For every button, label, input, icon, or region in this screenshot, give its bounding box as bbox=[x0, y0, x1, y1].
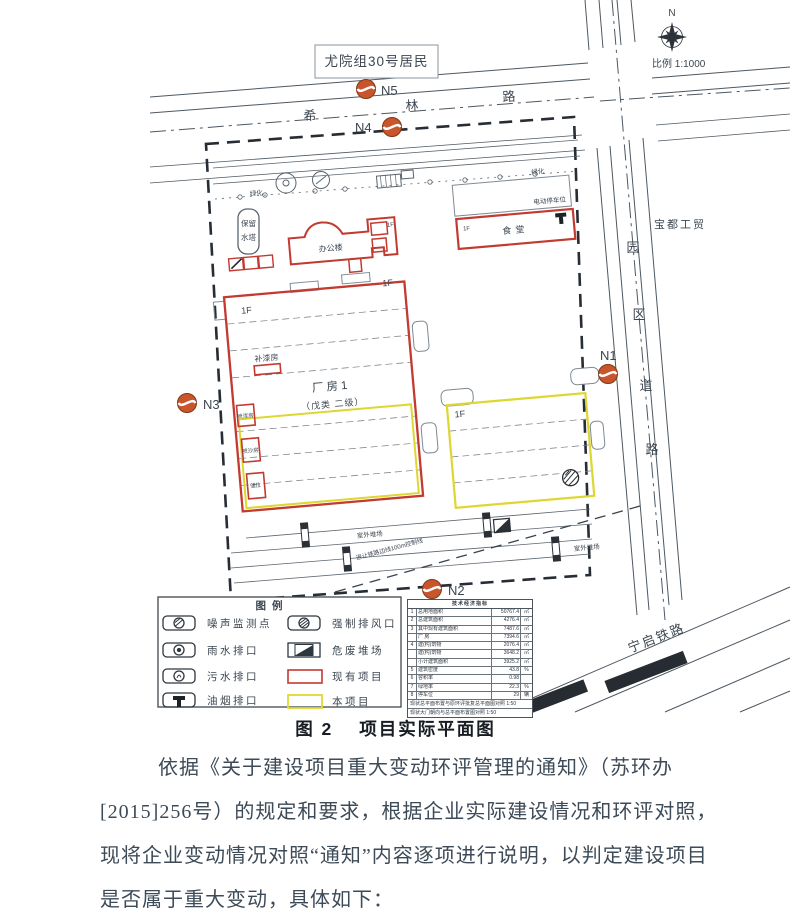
svg-text:林: 林 bbox=[405, 98, 419, 114]
noise-point-n1 bbox=[599, 365, 618, 384]
monitoring-points: N5 N4 N3 N1 N2 bbox=[178, 80, 618, 599]
compass-n-label: N bbox=[668, 8, 675, 19]
figure-number: 图 2 bbox=[295, 719, 333, 739]
indicator-table-title: 技术经济指标 bbox=[408, 600, 532, 609]
hazardous-waste-yard-icon bbox=[493, 518, 510, 532]
fence-posts bbox=[238, 172, 537, 199]
factory-name-label: 厂房1 bbox=[312, 379, 351, 395]
canteen-label: 食堂 bbox=[502, 223, 529, 236]
spray-paint-room-label: 喷漆房 bbox=[237, 411, 255, 420]
svg-text:区: 区 bbox=[632, 307, 645, 322]
railway-bar bbox=[604, 651, 687, 693]
noise-point-n3 bbox=[178, 394, 197, 413]
road-xilin bbox=[150, 63, 790, 183]
sand-blast-room-label: 喷沙房 bbox=[242, 446, 260, 455]
body-line: [2015]256号）的规定和要求，根据企业实际建设情况和环评对照， bbox=[100, 790, 700, 834]
svg-text:N5: N5 bbox=[381, 83, 398, 98]
floor-label: 1F bbox=[454, 409, 466, 420]
gate-markers bbox=[300, 513, 560, 572]
floor-label: 1F bbox=[463, 226, 471, 233]
svg-text:N3: N3 bbox=[203, 397, 220, 412]
body-line: 依据《关于建设项目重大变动环评管理的通知》（苏环办 bbox=[100, 746, 700, 790]
office-building: 办公楼 1F bbox=[288, 216, 399, 277]
resident-label-box: 尤院组30号居民 bbox=[315, 45, 438, 78]
legend: 图例 噪声监测点 雨水排口 污水排口 油烟排口 强制排风口 危 bbox=[158, 597, 401, 708]
paint-repair-room-label: 补漆房 bbox=[254, 352, 279, 364]
railway-ningqi: 宁启铁路 bbox=[500, 587, 790, 716]
oil-fume-outlet-icon bbox=[555, 213, 567, 225]
legend-exhaust-label: 强制排风口 bbox=[332, 617, 397, 630]
site-plan-figure: 宁启铁路 退让铁路边线100m控制线 绿化 保留 水塔 bbox=[0, 0, 791, 716]
railway-label: 宁启铁路 bbox=[626, 620, 687, 656]
table-row: 厂 房7394.6㎡ bbox=[408, 634, 532, 642]
legend-rain-label: 雨水排口 bbox=[207, 644, 259, 657]
document-page: 宁启铁路 退让铁路边线100m控制线 绿化 保留 水塔 bbox=[0, 0, 791, 913]
svg-text:希: 希 bbox=[303, 108, 317, 124]
road-name-xilin: 希 林 路 bbox=[303, 89, 516, 124]
substation bbox=[376, 170, 414, 188]
table-row: 小计建筑面积3925.2㎡ bbox=[408, 659, 532, 667]
table-row: 8停车位29辆 bbox=[408, 692, 532, 700]
table-row: 1总用地面积50767.4㎡ bbox=[408, 609, 532, 617]
floor-label: 1F bbox=[241, 305, 253, 316]
svg-text:水塔: 水塔 bbox=[241, 232, 256, 242]
office-label: 办公楼 bbox=[318, 242, 343, 254]
guard-booth bbox=[229, 255, 274, 271]
green-label: 绿化 bbox=[531, 166, 545, 176]
table-row: 5建筑密度43.8% bbox=[408, 667, 532, 675]
green-label: 绿化 bbox=[249, 188, 263, 198]
body-line: 现将企业变动情况对照“通知”内容逐项进行说明，以判定建设项目 bbox=[100, 834, 700, 878]
legend-hazwaste-label: 危废堆场 bbox=[332, 644, 384, 657]
floor-label: 1F bbox=[382, 277, 394, 288]
noise-point-n4 bbox=[383, 118, 402, 137]
table-row: 4建(构)筑物2076.4㎡ bbox=[408, 642, 532, 650]
body-line: 是否属于重大变动，具体如下： bbox=[100, 878, 700, 913]
legend-existing-label: 现有项目 bbox=[332, 670, 384, 683]
noise-point-n2 bbox=[423, 580, 442, 599]
ev-parking-label: 电动停车位 bbox=[533, 194, 567, 206]
svg-text:路: 路 bbox=[502, 89, 516, 105]
table-row: 2总建筑面积4276.4㎡ bbox=[408, 617, 532, 625]
outdoor-yard-label: 室外堆场 bbox=[356, 529, 383, 540]
svg-text:N2: N2 bbox=[448, 583, 465, 598]
forced-exhaust-icon bbox=[562, 469, 579, 486]
svg-text:园: 园 bbox=[626, 240, 639, 255]
legend-oil-label: 油烟排口 bbox=[207, 694, 259, 707]
svg-text:尤院组30号居民: 尤院组30号居民 bbox=[324, 54, 428, 69]
svg-text:道: 道 bbox=[639, 378, 652, 393]
utility-outlets-top bbox=[276, 172, 330, 194]
canteen-block: 电动停车位 绿化 1F 食堂 bbox=[451, 164, 575, 249]
compass-rose: N bbox=[657, 8, 687, 52]
svg-text:N4: N4 bbox=[355, 120, 372, 135]
indicator-table: 技术经济指标 1总用地面积50767.4㎡ 2总建筑面积4276.4㎡ 3其中现… bbox=[407, 599, 533, 718]
table-row: 建(构)筑物3648.2㎡ bbox=[408, 650, 532, 658]
outdoor-yard-label: 室外堆场 bbox=[573, 542, 600, 553]
figure-caption: 图 2项目实际平面图 bbox=[0, 716, 791, 741]
legend-title: 图例 bbox=[256, 599, 289, 612]
hazwaste-legend-icon bbox=[295, 645, 313, 656]
legend-noise-label: 噪声监测点 bbox=[207, 617, 272, 630]
noise-point-n5 bbox=[357, 80, 376, 99]
body-paragraph: 依据《关于建设项目重大变动环评管理的通知》（苏环办 [2015]256号）的规定… bbox=[100, 746, 700, 913]
svg-text:N1: N1 bbox=[600, 348, 617, 363]
storage-label: 储位 bbox=[250, 481, 262, 490]
factory-building-1: 1F 1F 补漆房 厂房1 （戊类 二级） 喷漆房 喷沙房 储位 bbox=[212, 268, 442, 513]
table-row: 6容积率0.98 bbox=[408, 675, 532, 683]
floor-label: 1F bbox=[387, 222, 395, 229]
legend-sewage-label: 污水排口 bbox=[207, 670, 259, 683]
svg-text:路: 路 bbox=[645, 442, 658, 457]
baodu-company-label: 宝都工贸 bbox=[654, 217, 706, 231]
svg-text:保留: 保留 bbox=[241, 218, 256, 228]
table-row: 7绿地率22.3% bbox=[408, 684, 532, 692]
figure-title: 项目实际平面图 bbox=[359, 719, 496, 739]
this-project-outline bbox=[447, 393, 594, 508]
table-row: 3其中现有建筑面积7487.6㎡ bbox=[408, 626, 532, 634]
legend-this-project-label: 本项目 bbox=[332, 695, 371, 708]
existing-project-outline bbox=[224, 281, 423, 511]
table-note: 现状总平面布置与原环评批复总平面图对照 1:50 bbox=[408, 700, 532, 709]
scale-label: 比例 1:1000 bbox=[652, 57, 706, 70]
water-tower: 保留 水塔 bbox=[238, 209, 259, 254]
